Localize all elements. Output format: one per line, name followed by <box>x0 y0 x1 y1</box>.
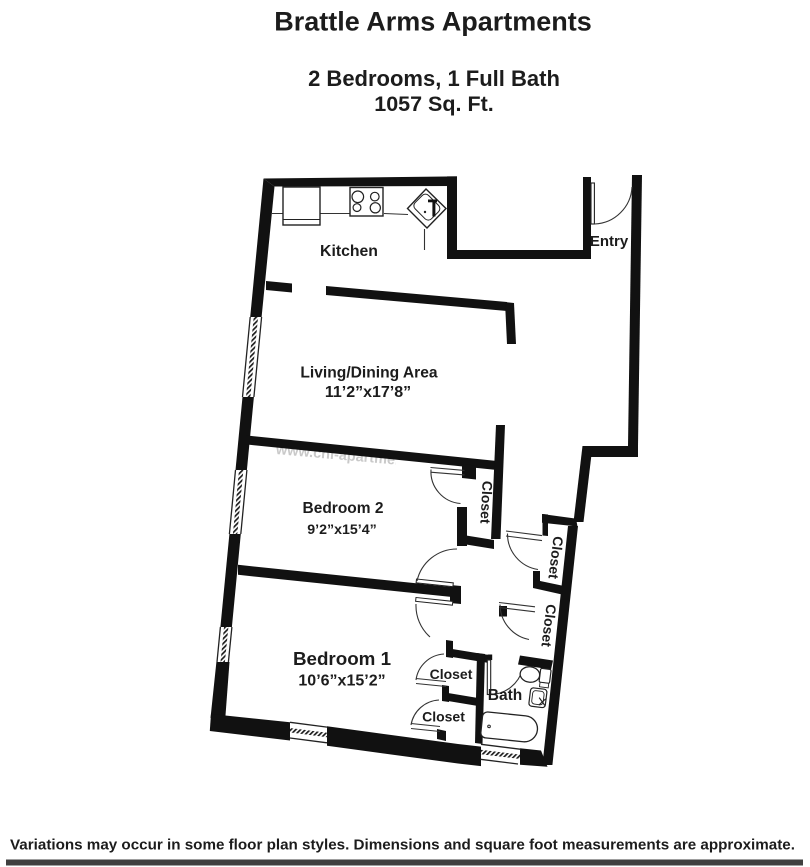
svg-text:2 Bedrooms, 1 Full Bath: 2 Bedrooms, 1 Full Bath <box>308 66 560 91</box>
svg-text:Living/Dining Area: Living/Dining Area <box>300 365 438 382</box>
svg-text:Bedroom 2: Bedroom 2 <box>303 500 384 517</box>
svg-text:Closet: Closet <box>422 709 465 725</box>
svg-text:11’2”x17’8”: 11’2”x17’8” <box>325 384 411 401</box>
svg-text:1057 Sq. Ft.: 1057 Sq. Ft. <box>374 92 494 116</box>
svg-text:9’2”x15’4”: 9’2”x15’4” <box>307 522 376 538</box>
svg-text:Kitchen: Kitchen <box>320 243 378 260</box>
svg-text:Bedroom 1: Bedroom 1 <box>293 648 391 669</box>
svg-text:Brattle Arms Apartments: Brattle Arms Apartments <box>274 7 592 37</box>
svg-text:Entry: Entry <box>590 233 629 250</box>
svg-text:10’6”x15’2”: 10’6”x15’2” <box>298 673 385 690</box>
svg-text:Bath: Bath <box>488 687 522 704</box>
svg-text:Closet: Closet <box>430 666 473 682</box>
svg-text:Variations may occur in some f: Variations may occur in some floor plan … <box>10 837 795 854</box>
svg-text:Closet: Closet <box>477 480 495 524</box>
